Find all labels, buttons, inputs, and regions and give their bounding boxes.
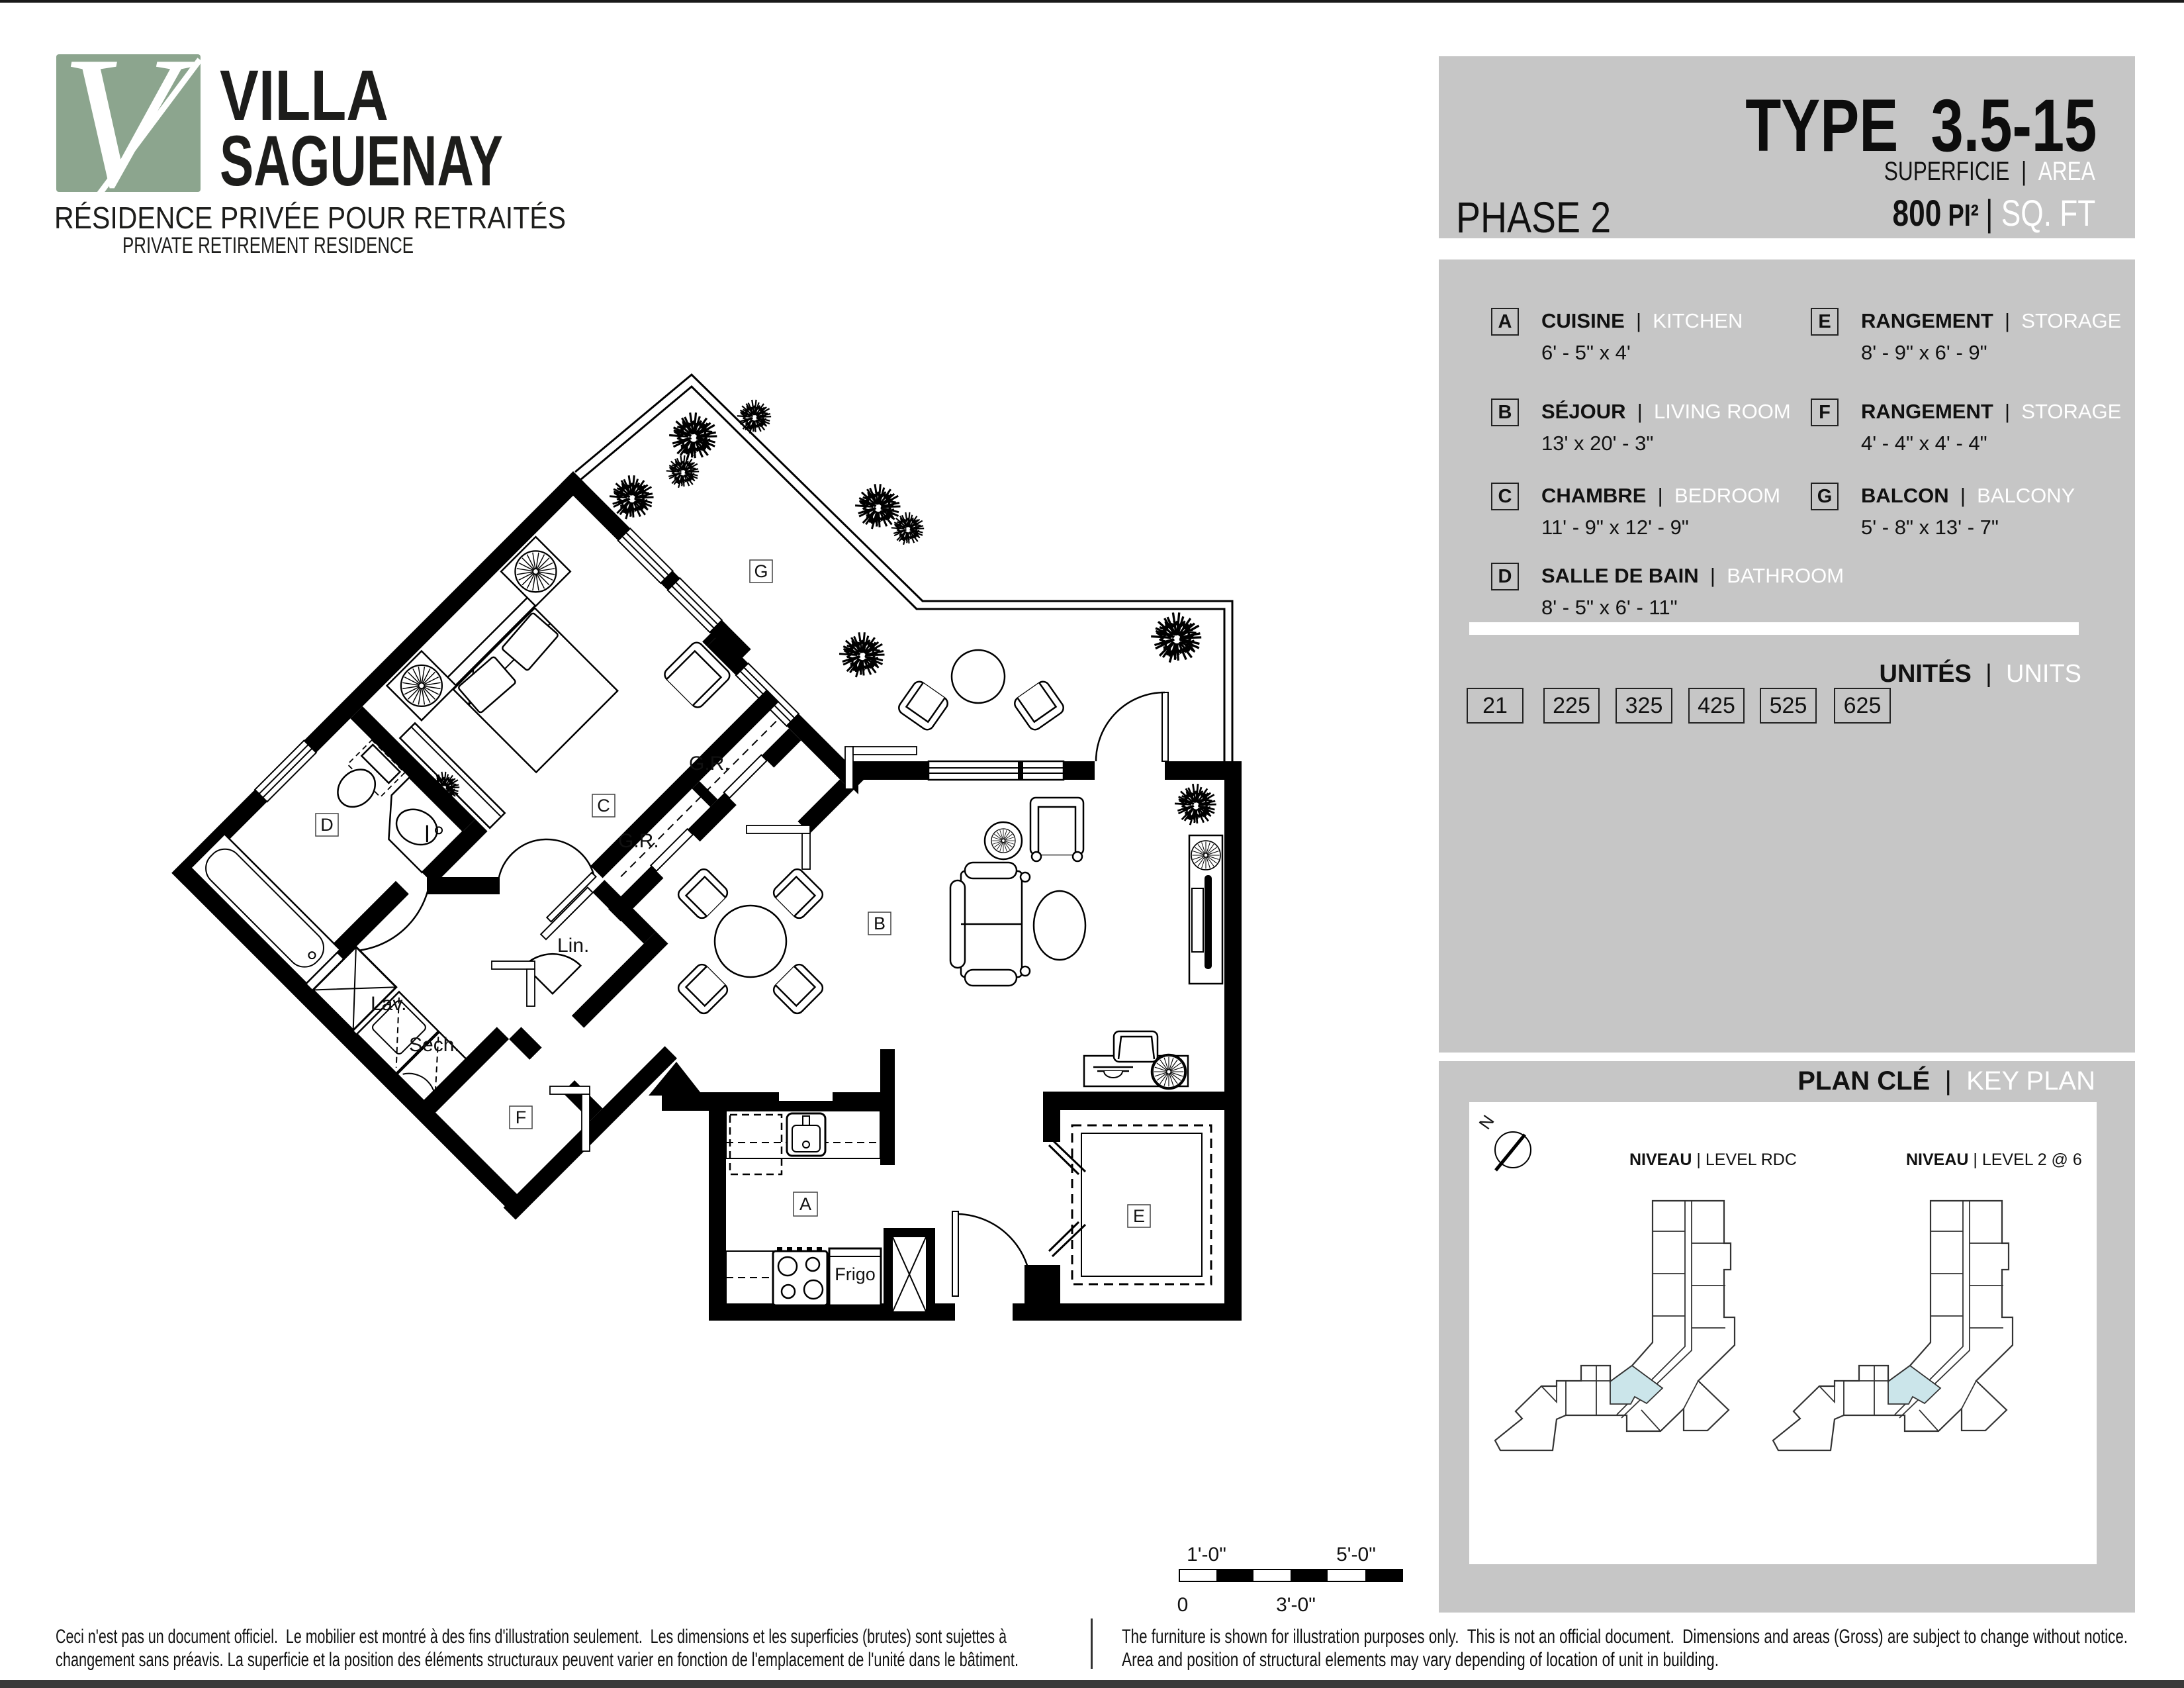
svg-text:A: A (799, 1194, 811, 1214)
svg-text:5'-0": 5'-0" (1336, 1544, 1376, 1566)
svg-text:Lin.: Lin. (557, 935, 589, 957)
svg-text:N: N (1475, 1111, 1498, 1133)
svg-text:changement sans préavis. La su: changement sans préavis. La superficie e… (56, 1649, 1019, 1671)
svg-text:C: C (597, 796, 610, 816)
svg-text:Frigo: Frigo (835, 1264, 876, 1284)
svg-text:E: E (1133, 1206, 1145, 1226)
svg-text:Sech.: Sech. (409, 1034, 460, 1056)
svg-text:D: D (320, 815, 334, 835)
svg-text:The furniture is shown for ill: The furniture is shown for illustration … (1122, 1626, 2128, 1648)
svg-text:Area and position of structura: Area and position of structural elements… (1122, 1649, 1719, 1671)
svg-text:G.R.: G.R. (618, 830, 659, 852)
svg-text:B: B (874, 914, 886, 933)
svg-text:G: G (754, 561, 768, 581)
svg-text:1'-0": 1'-0" (1187, 1544, 1226, 1566)
svg-text:Ceci n'est pas un document off: Ceci n'est pas un document officiel. Le … (56, 1626, 1007, 1648)
svg-text:F: F (516, 1107, 527, 1127)
svg-text:NIVEAU | LEVEL RDC: NIVEAU | LEVEL RDC (1629, 1150, 1797, 1169)
svg-text:NIVEAU | LEVEL 2 @ 6: NIVEAU | LEVEL 2 @ 6 (1906, 1150, 2082, 1169)
svg-text:Lav.: Lav. (371, 993, 406, 1015)
svg-text:G.R.: G.R. (689, 753, 730, 774)
